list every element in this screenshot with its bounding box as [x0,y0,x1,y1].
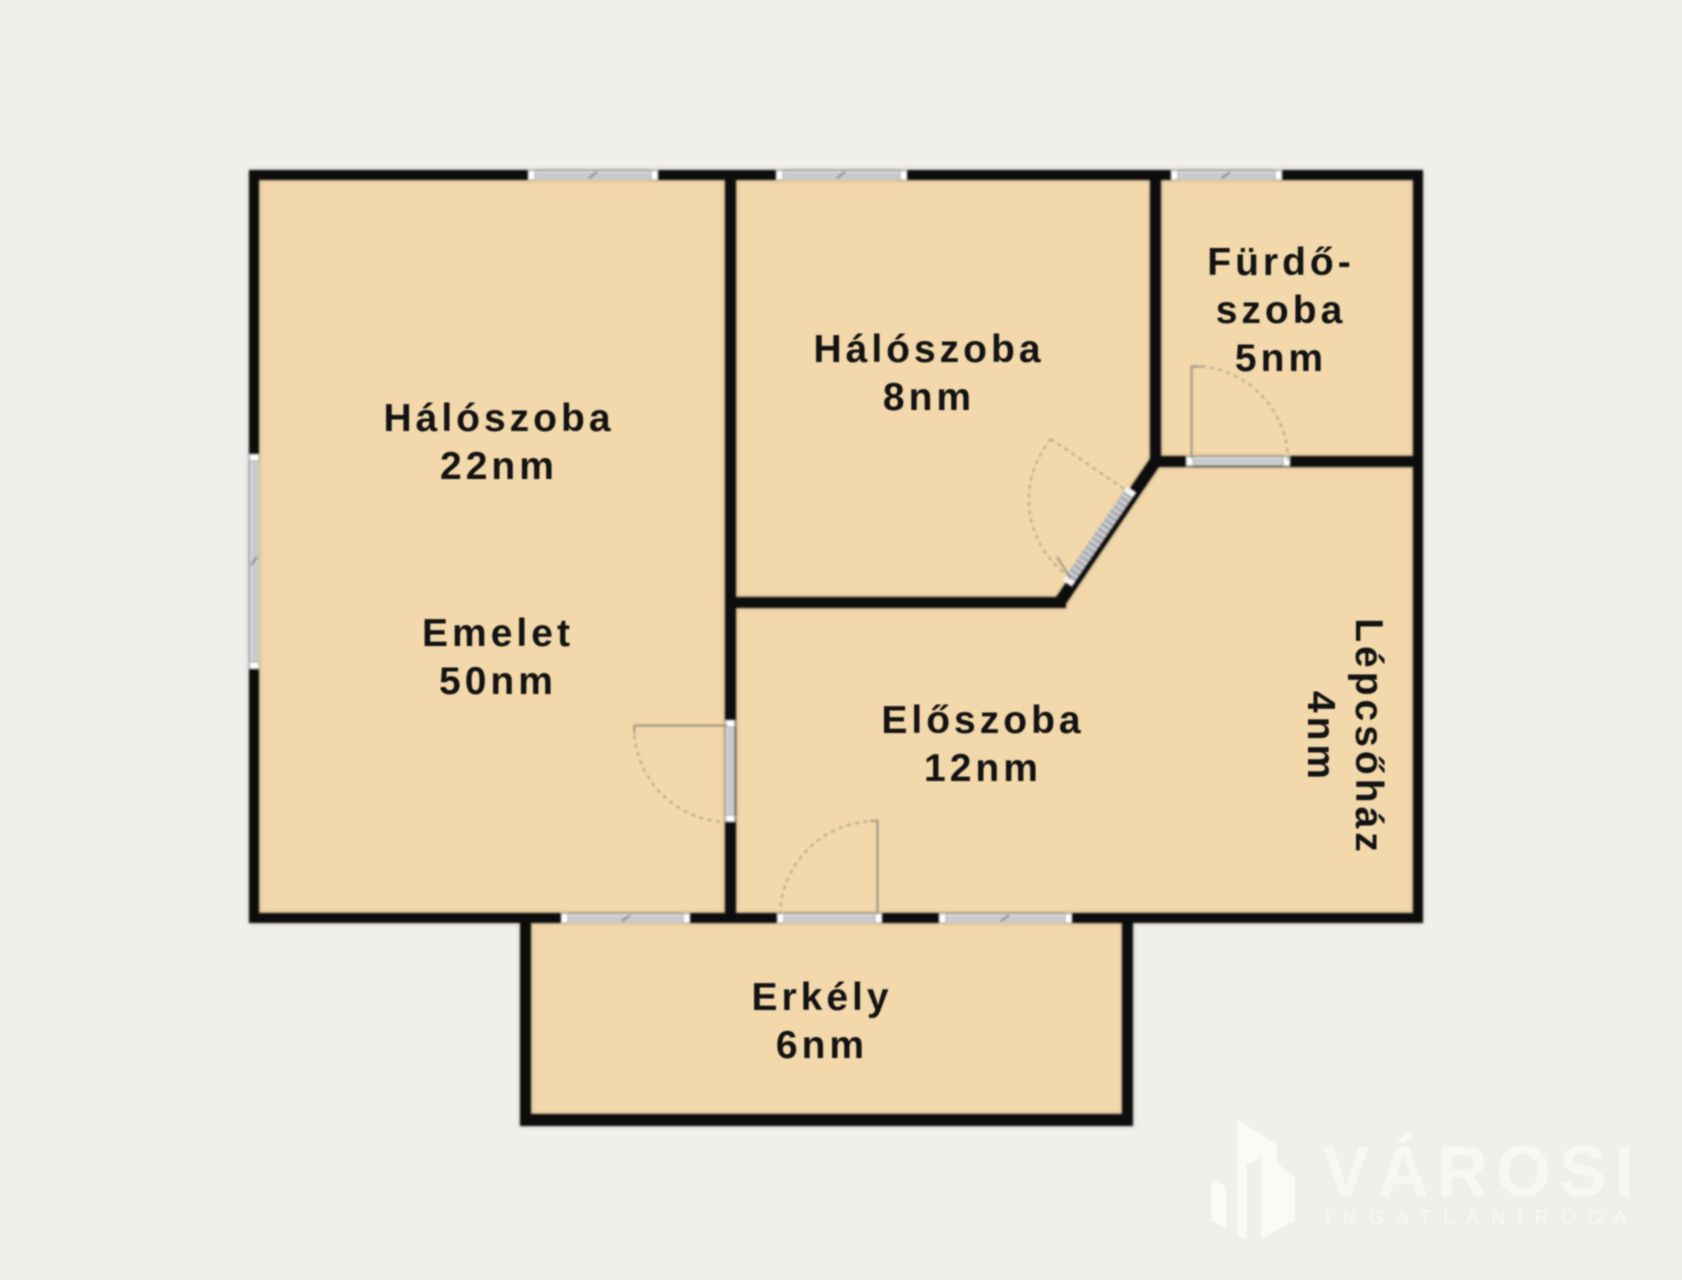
svg-text:INGATLANIRODA: INGATLANIRODA [1325,1207,1639,1229]
svg-text:VÁROSI: VÁROSI [1322,1133,1642,1212]
